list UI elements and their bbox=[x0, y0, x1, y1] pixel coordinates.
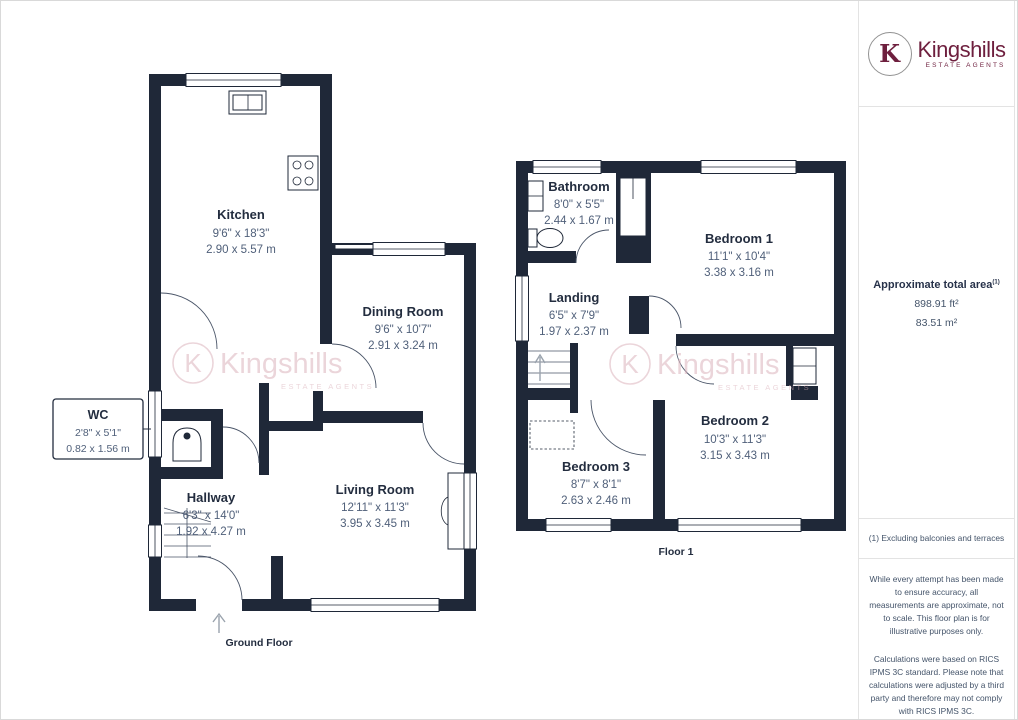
bedroom3-wardrobe-icon bbox=[530, 421, 574, 449]
room-label-bedroom1: Bedroom 1 bbox=[705, 231, 773, 246]
watermark-logo: K Kingshills ESTATE AGENTS bbox=[173, 343, 374, 391]
brand-wordmark: Kingshills ESTATE AGENTS bbox=[918, 38, 1006, 69]
total-area-sqm: 83.51 m² bbox=[859, 317, 1014, 329]
room-dims-bathroom-metric: 2.44 x 1.67 m bbox=[544, 215, 614, 227]
room-dims-bedroom2-imperial: 10'3" x 11'3" bbox=[704, 434, 766, 446]
ground-floor-plan: WC 2'8" x 5'1" 0.82 x 1.56 m K Kingshill… bbox=[41, 61, 486, 661]
watermark-logo-floor1: K Kingshills ESTATE AGENTS bbox=[610, 344, 811, 392]
room-dims-wc-imperial: 2'8" x 5'1" bbox=[75, 427, 121, 439]
floor-1-caption: Floor 1 bbox=[658, 546, 693, 558]
disclaimer-block: While every attempt has been made to ens… bbox=[867, 558, 1006, 720]
room-label-hallway: Hallway bbox=[187, 490, 236, 505]
area-footnote: (1) Excluding balconies and terraces bbox=[869, 533, 1004, 543]
bathroom-toilet-icon bbox=[528, 229, 563, 248]
total-area-title: Approximate total area(1) bbox=[859, 279, 1014, 291]
watermark-tagline: ESTATE AGENTS bbox=[281, 382, 374, 391]
brand-logo-letter: K bbox=[879, 42, 900, 66]
bathroom-sink-icon bbox=[528, 181, 543, 211]
watermark-k: K bbox=[184, 348, 202, 378]
disclaimer-rics: Calculations were based on RICS IPMS 3C … bbox=[867, 653, 1006, 718]
brand-tagline: ESTATE AGENTS bbox=[926, 62, 1006, 69]
wc-callout: WC 2'8" x 5'1" 0.82 x 1.56 m bbox=[53, 399, 151, 459]
ground-floor-caption: Ground Floor bbox=[225, 637, 292, 649]
kitchen-hob-icon bbox=[288, 156, 318, 190]
toilet-icon bbox=[173, 428, 201, 461]
room-dims-dining-metric: 2.91 x 3.24 m bbox=[368, 340, 438, 352]
bathroom-cupboard-icon bbox=[620, 178, 646, 236]
watermark-k-floor1: K bbox=[621, 349, 639, 379]
entrance-arrow-icon bbox=[213, 614, 225, 633]
brand-name: Kingshills bbox=[918, 38, 1006, 61]
disclaimer-accuracy: While every attempt has been made to ens… bbox=[867, 573, 1006, 638]
room-dims-dining-imperial: 9'6" x 10'7" bbox=[375, 324, 432, 336]
bedroom2-cupboard-icon bbox=[793, 348, 816, 384]
room-dims-bathroom-imperial: 8'0" x 5'5" bbox=[554, 199, 604, 211]
watermark-tagline-floor1: ESTATE AGENTS bbox=[718, 383, 811, 392]
room-label-living: Living Room bbox=[336, 482, 415, 497]
room-dims-bedroom1-imperial: 11'1" x 10'4" bbox=[708, 251, 770, 263]
room-dims-bedroom3-metric: 2.63 x 2.46 m bbox=[561, 495, 631, 507]
room-dims-bedroom1-metric: 3.38 x 3.16 m bbox=[704, 267, 774, 279]
footnote-block: (1) Excluding balconies and terraces bbox=[865, 518, 1008, 558]
room-label-landing: Landing bbox=[549, 290, 600, 305]
room-dims-landing-metric: 1.97 x 2.37 m bbox=[539, 326, 609, 338]
room-label-bedroom3: Bedroom 3 bbox=[562, 459, 630, 474]
kitchen-sink-icon bbox=[229, 91, 266, 114]
room-dims-bedroom2-metric: 3.15 x 3.43 m bbox=[700, 450, 770, 462]
room-dims-living-metric: 3.95 x 3.45 m bbox=[340, 518, 410, 530]
total-area-superscript: (1) bbox=[992, 279, 999, 285]
room-dims-kitchen-metric: 2.90 x 5.57 m bbox=[206, 244, 276, 256]
room-dims-wc-metric: 0.82 x 1.56 m bbox=[66, 443, 130, 455]
room-dims-kitchen-imperial: 9'6" x 18'3" bbox=[213, 228, 270, 240]
brand-logo-circle-icon: K bbox=[868, 32, 912, 76]
floor-1-plan: K Kingshills ESTATE AGENTS Bathroom 8'0"… bbox=[506, 151, 856, 571]
total-area-title-text: Approximate total area bbox=[873, 279, 992, 291]
room-dims-living-imperial: 12'11" x 11'3" bbox=[341, 502, 409, 514]
total-area-sqft: 898.91 ft² bbox=[859, 298, 1014, 310]
brand-logo: K Kingshills ESTATE AGENTS bbox=[859, 1, 1014, 106]
watermark-word: Kingshills bbox=[220, 348, 343, 380]
room-dims-hallway-metric: 1.92 x 4.27 m bbox=[176, 526, 246, 538]
room-dims-landing-imperial: 6'5" x 7'9" bbox=[549, 310, 599, 322]
stairs-up-arrow-icon bbox=[535, 355, 545, 381]
room-label-bedroom2: Bedroom 2 bbox=[701, 413, 769, 428]
room-dims-hallway-imperial: 6'3" x 14'0" bbox=[183, 510, 240, 522]
room-label-wc: WC bbox=[88, 408, 109, 422]
total-area-block: Approximate total area(1) 898.91 ft² 83.… bbox=[859, 279, 1014, 329]
floorplan-page: WC 2'8" x 5'1" 0.82 x 1.56 m K Kingshill… bbox=[0, 0, 1018, 720]
info-sidebar: K Kingshills ESTATE AGENTS Approximate t… bbox=[858, 1, 1015, 720]
room-dims-bedroom3-imperial: 8'7" x 8'1" bbox=[571, 479, 621, 491]
room-label-kitchen: Kitchen bbox=[217, 207, 265, 222]
floor-1-stairs bbox=[528, 351, 570, 384]
room-label-bathroom: Bathroom bbox=[548, 179, 609, 194]
room-label-dining: Dining Room bbox=[363, 304, 444, 319]
watermark-word-floor1: Kingshills bbox=[657, 349, 780, 381]
front-door-opening bbox=[196, 598, 242, 612]
sidebar-divider bbox=[859, 106, 1014, 107]
